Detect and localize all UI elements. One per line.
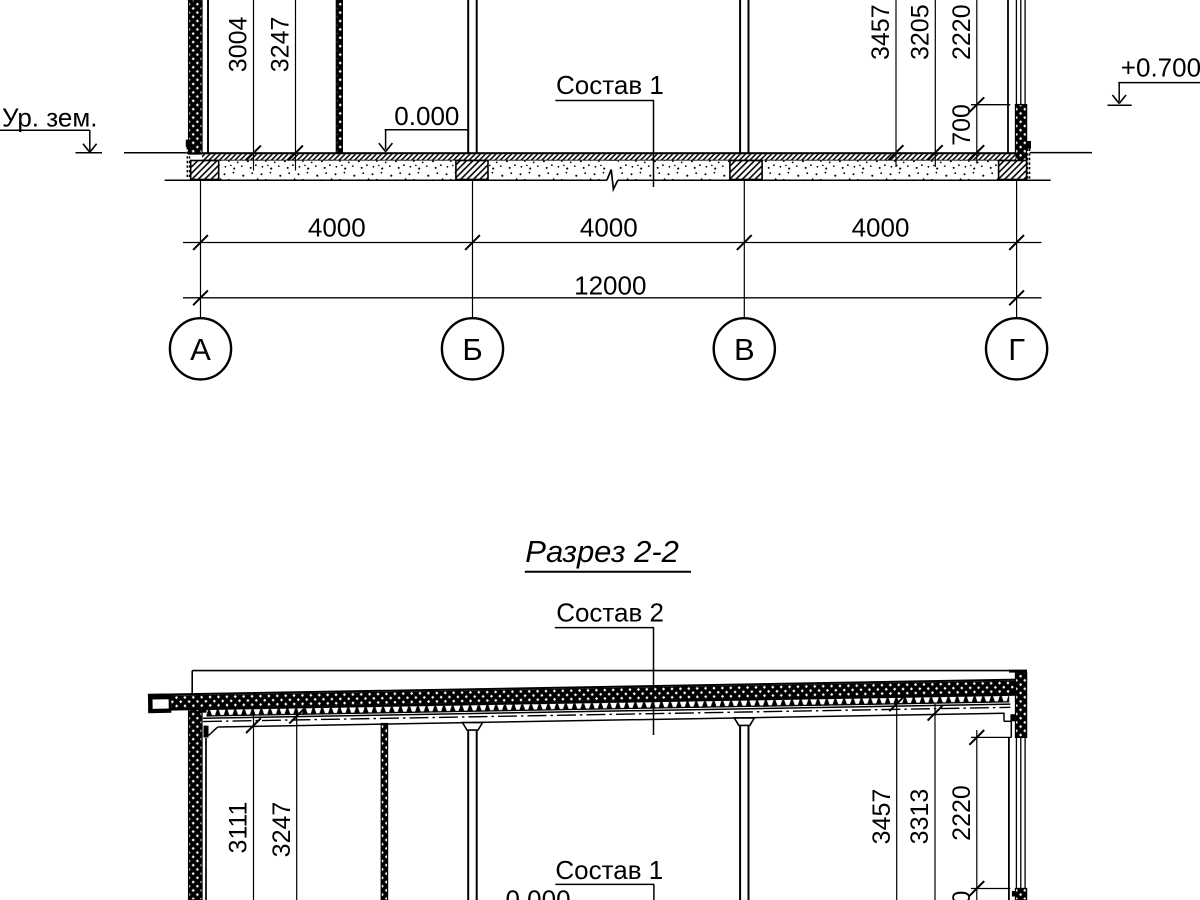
svg-text:3313: 3313 [906,789,934,845]
svg-text:Г: Г [1008,332,1025,367]
svg-text:4000: 4000 [308,212,366,242]
svg-text:3457: 3457 [868,789,896,845]
svg-text:12000: 12000 [574,270,646,300]
svg-text:700: 700 [948,891,976,900]
svg-text:Б: Б [462,332,482,367]
svg-text:0.000: 0.000 [506,885,571,900]
svg-text:А: А [190,332,211,367]
svg-text:В: В [734,332,755,367]
svg-text:Ур. зем.: Ур. зем. [2,103,97,133]
svg-text:Состав 2: Состав 2 [556,597,664,627]
svg-text:0.000: 0.000 [394,101,459,131]
svg-text:4000: 4000 [580,212,638,242]
svg-text:2220: 2220 [948,4,976,60]
svg-text:Разрез 2-2: Разрез 2-2 [525,534,679,569]
svg-text:Состав 1: Состав 1 [555,855,663,885]
svg-text:3247: 3247 [268,802,296,858]
svg-text:Состав 1: Состав 1 [556,70,664,100]
svg-text:3457: 3457 [867,4,895,60]
svg-text:+0.700: +0.700 [1121,52,1200,82]
svg-text:2220: 2220 [948,785,976,841]
svg-text:3004: 3004 [225,17,253,73]
svg-text:3111: 3111 [225,802,253,854]
svg-text:700: 700 [948,104,976,146]
svg-text:4000: 4000 [852,212,910,242]
svg-text:3247: 3247 [267,17,295,73]
svg-text:3205: 3205 [907,4,935,60]
